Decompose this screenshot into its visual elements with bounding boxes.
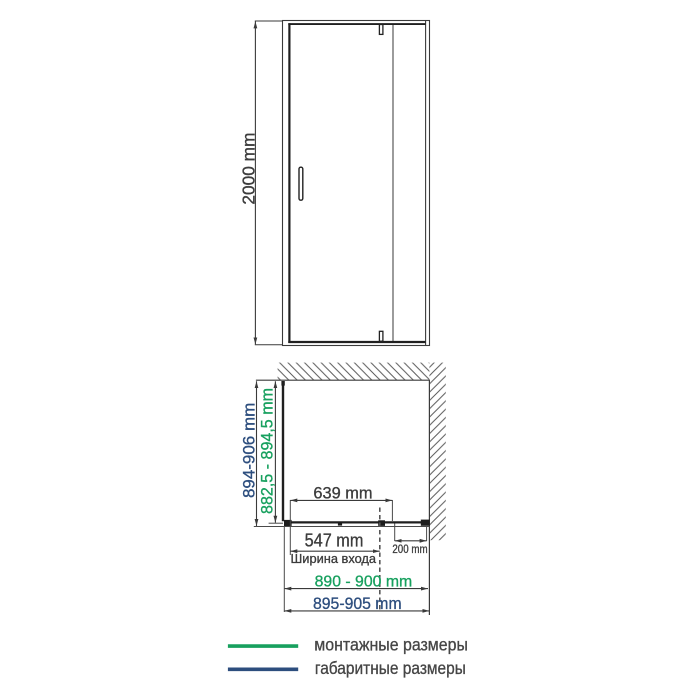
svg-text:Ширина входа: Ширина входа [291, 551, 377, 566]
svg-text:200 mm: 200 mm [392, 543, 427, 556]
svg-text:639 mm: 639 mm [313, 485, 372, 503]
svg-text:882,5 - 894,5 mm: 882,5 - 894,5 mm [258, 388, 277, 514]
svg-text:монтажные размеры: монтажные размеры [314, 635, 468, 655]
svg-text:2000 mm: 2000 mm [238, 133, 258, 205]
svg-text:547 mm: 547 mm [305, 531, 364, 551]
svg-text:895-905 mm: 895-905 mm [313, 594, 402, 613]
svg-text:894-906 mm: 894-906 mm [239, 403, 258, 498]
svg-text:890 - 900 mm: 890 - 900 mm [315, 573, 413, 590]
svg-text:габаритные размеры: габаритные размеры [315, 658, 466, 678]
